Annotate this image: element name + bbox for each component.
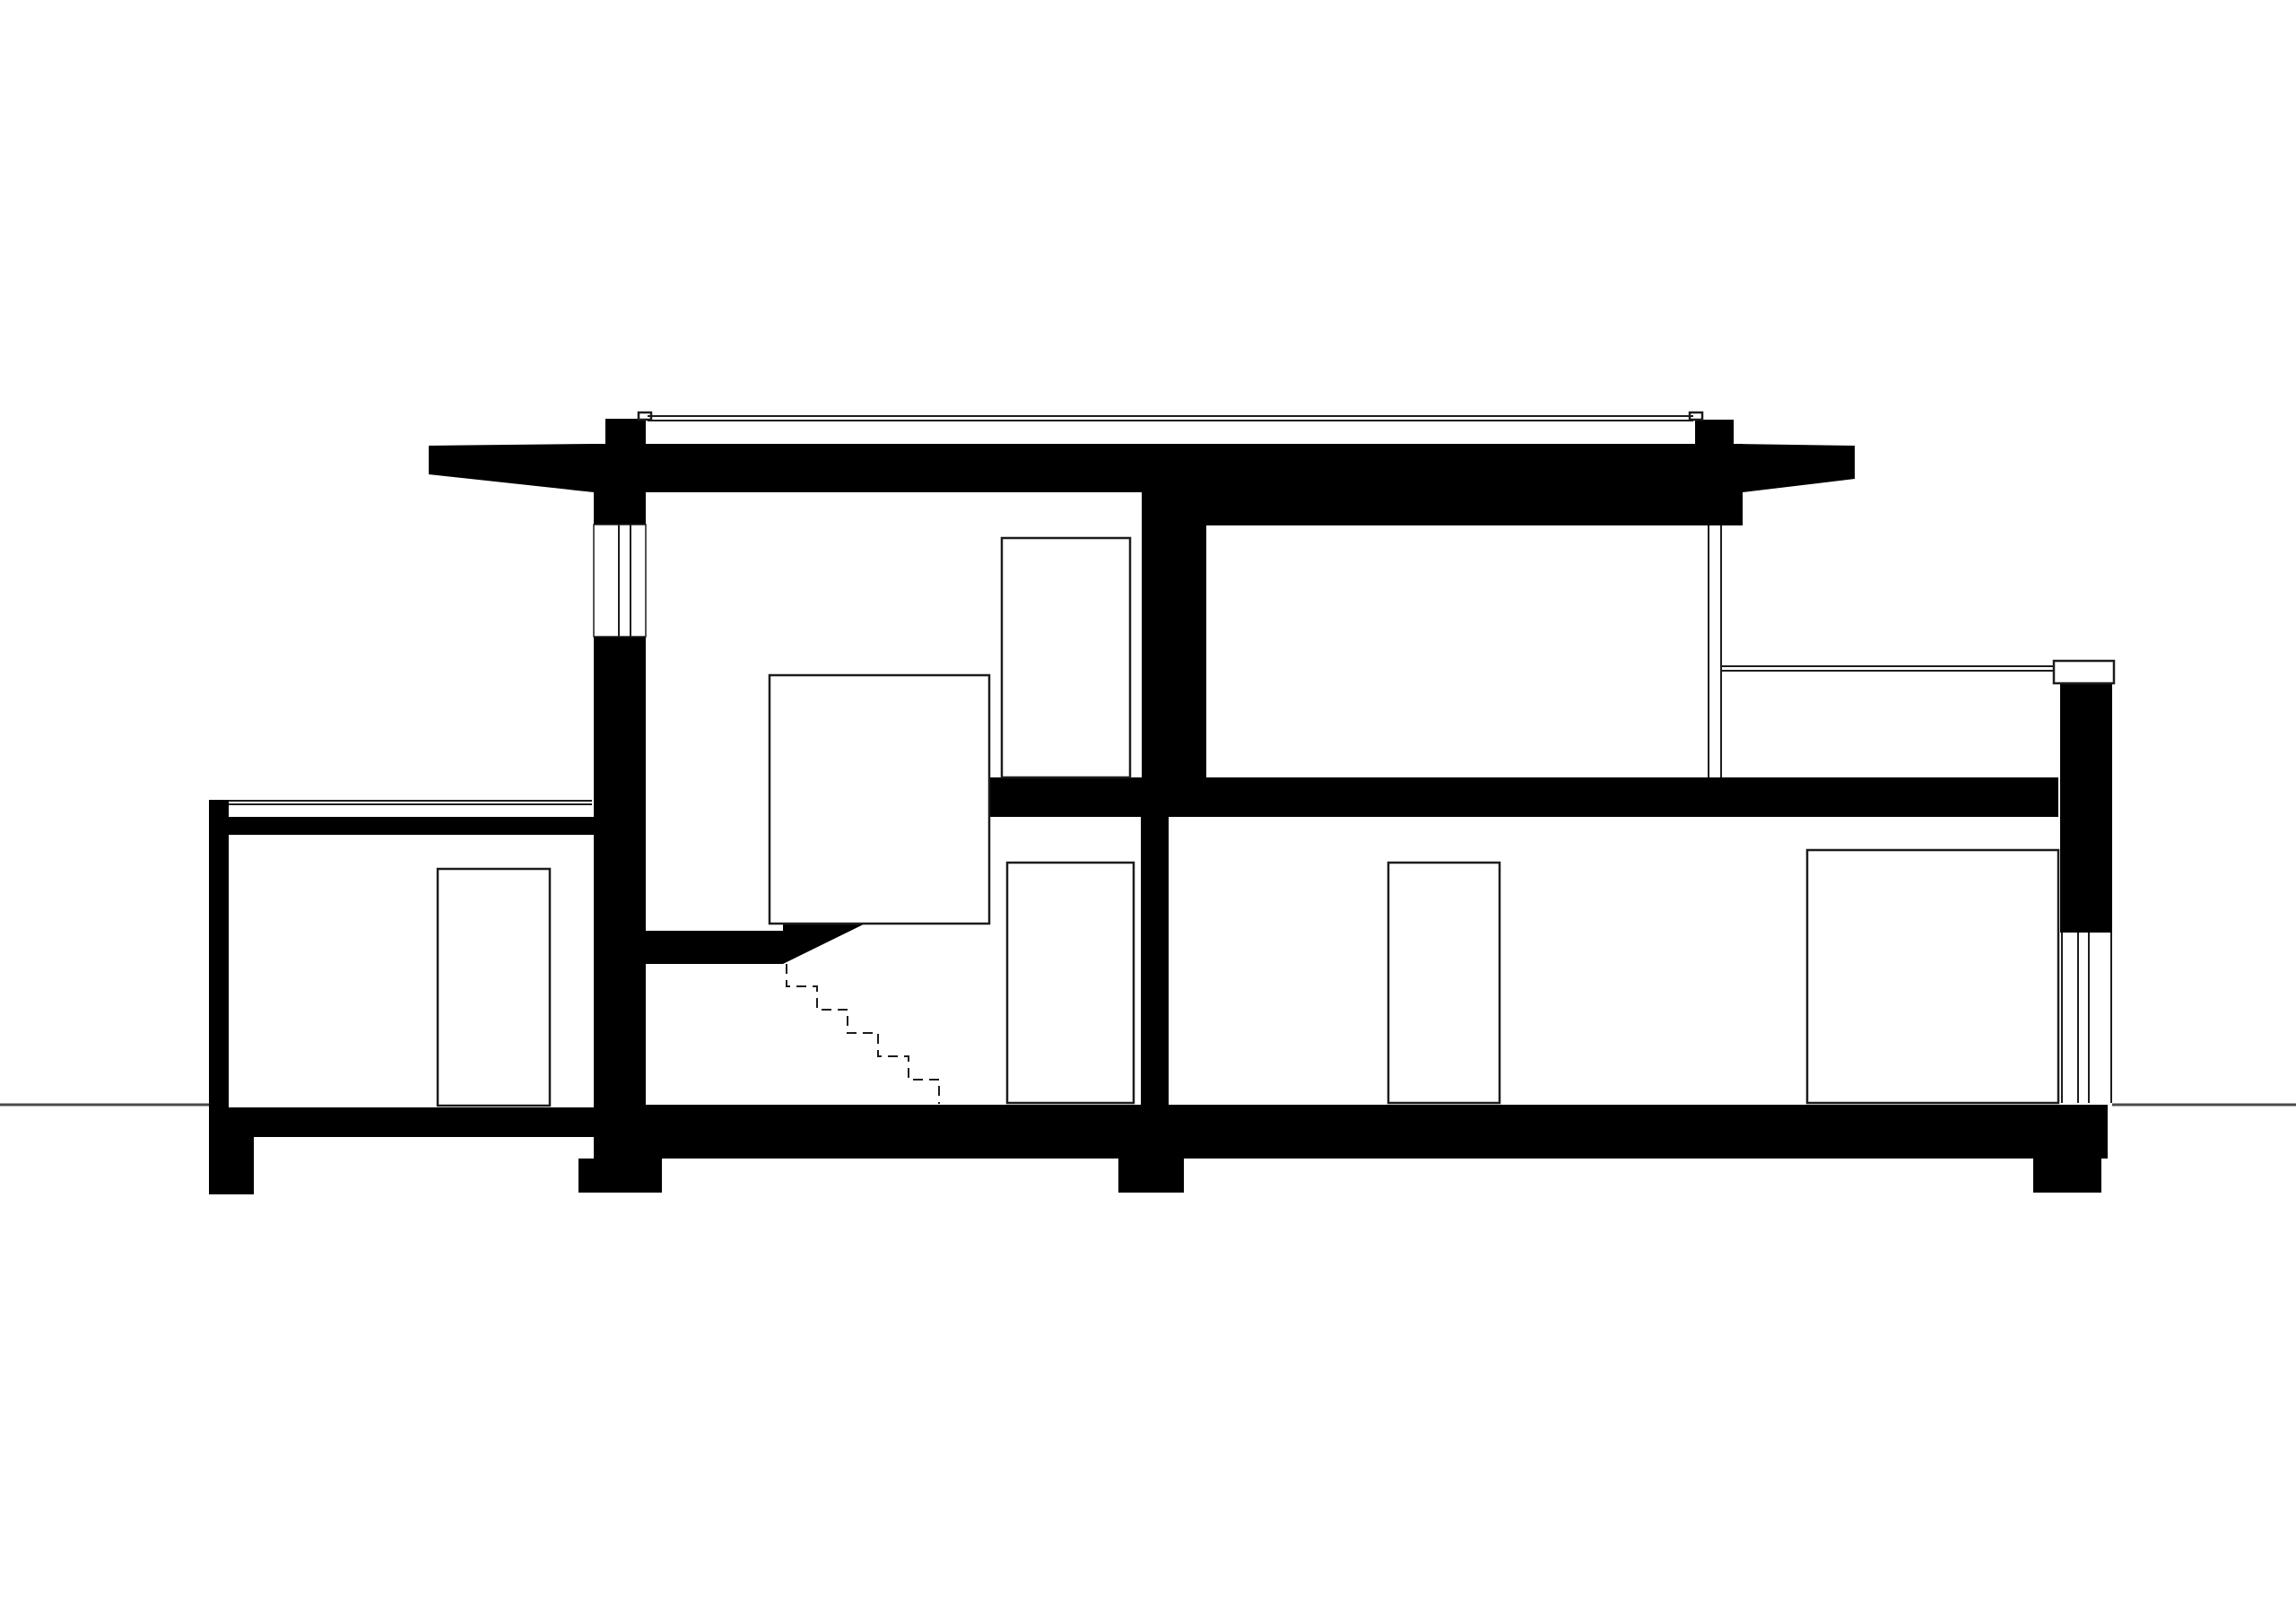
stair-lower-flight-dashed: [787, 964, 939, 1104]
roof-beam-right-room: [1206, 492, 1743, 525]
wall-interior-ground: [1141, 817, 1169, 1105]
garage-door: [438, 869, 550, 1106]
floor-band-upper: [989, 777, 2058, 817]
wall-interior-upper: [1142, 492, 1206, 777]
footing-wall-left: [578, 1159, 662, 1193]
parapet-right: [1695, 420, 1734, 444]
roof-overhang-right: [1734, 444, 1855, 492]
ground-floor-door-right: [1388, 863, 1500, 1103]
roof-upstand-lower-right: [2054, 661, 2114, 683]
footing-wall-right: [2033, 1159, 2101, 1193]
slab-ground-garage: [209, 1107, 594, 1137]
stairwell-window: [770, 675, 989, 924]
roof-band-garage: [228, 817, 594, 835]
wall-garage-left: [209, 800, 229, 1137]
roof-overhang-left: [429, 444, 594, 492]
ground-floor-slider: [1807, 850, 2058, 1103]
parapet-left: [605, 419, 646, 444]
footing-wall-interior: [1118, 1159, 1184, 1193]
slab-ground-main: [594, 1105, 2108, 1159]
wall-lower-right: [2060, 683, 2112, 933]
ground-floor-door-left: [1007, 863, 1134, 1103]
footing-garage-left: [209, 1137, 254, 1194]
section-drawing: [0, 0, 2296, 1623]
roof-slab-main: [594, 444, 1743, 492]
architectural-section-canvas: [0, 0, 2296, 1623]
upper-floor-door: [1002, 538, 1130, 777]
